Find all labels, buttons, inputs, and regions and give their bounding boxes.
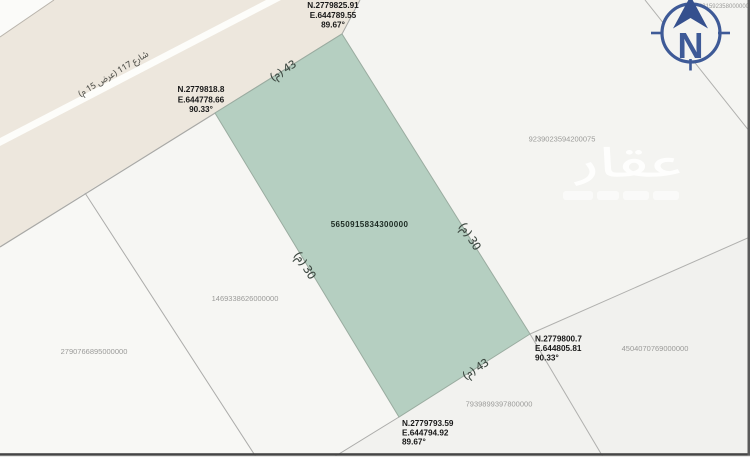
svg-text:1469338626000000: 1469338626000000 xyxy=(212,294,279,303)
svg-text:9239023594200075: 9239023594200075 xyxy=(529,135,596,144)
svg-text:7939899397800000: 7939899397800000 xyxy=(466,400,533,409)
svg-text:89.67°: 89.67° xyxy=(321,21,345,30)
svg-text:E.644794.92: E.644794.92 xyxy=(402,429,449,438)
svg-text:E.644789.55: E.644789.55 xyxy=(310,11,357,20)
svg-text:E.644778.66: E.644778.66 xyxy=(178,96,225,105)
svg-text:90.33°: 90.33° xyxy=(189,105,213,114)
svg-text:89.67°: 89.67° xyxy=(402,438,426,447)
svg-text:4504070769000000: 4504070769000000 xyxy=(622,344,689,353)
svg-text:90.33°: 90.33° xyxy=(535,354,559,363)
svg-text:N.2779825.91: N.2779825.91 xyxy=(307,1,359,10)
svg-text:N.2779800.7: N.2779800.7 xyxy=(535,335,582,344)
svg-text:E.644805.81: E.644805.81 xyxy=(535,344,582,353)
svg-text:5650915834300000: 5650915834300000 xyxy=(331,220,409,229)
svg-text:2790766895000000: 2790766895000000 xyxy=(61,347,128,356)
svg-text:N.2779793.59: N.2779793.59 xyxy=(402,419,454,428)
svg-text:N.2779818.8: N.2779818.8 xyxy=(178,85,225,94)
svg-text:N: N xyxy=(678,25,704,66)
